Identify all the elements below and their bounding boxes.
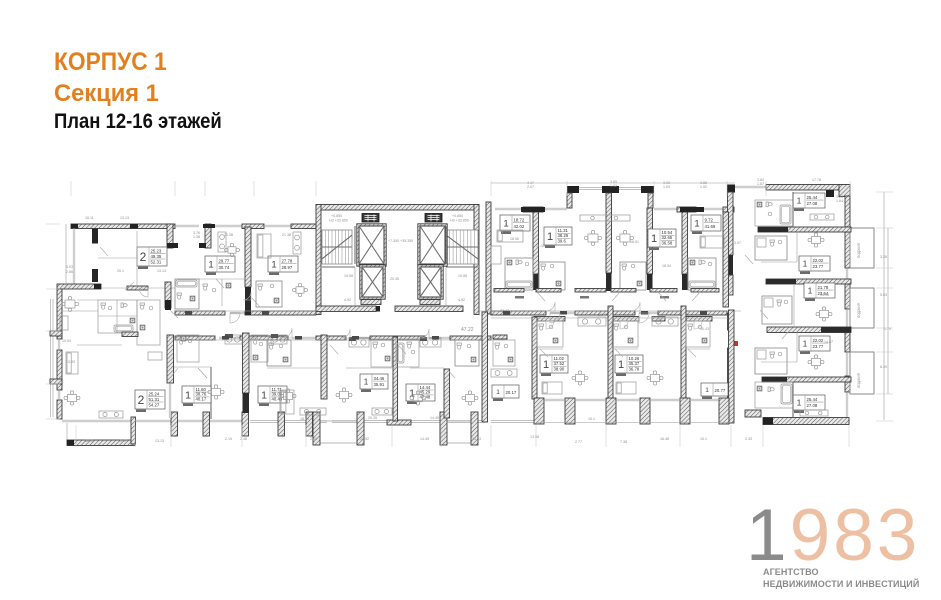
svg-text:2.86: 2.86 <box>66 270 73 274</box>
svg-text:8.39: 8.39 <box>880 365 887 369</box>
svg-text:18.11: 18.11 <box>85 216 94 220</box>
svg-text:2.19: 2.19 <box>225 437 232 441</box>
svg-text:9.72: 9.72 <box>705 217 714 222</box>
svg-text:11.45: 11.45 <box>536 244 545 248</box>
svg-text:49.35: 49.35 <box>151 254 162 259</box>
svg-text:1: 1 <box>503 218 508 229</box>
svg-text:4.92: 4.92 <box>344 298 351 302</box>
svg-text:18.78: 18.78 <box>300 417 309 421</box>
svg-text:1.52: 1.52 <box>700 185 707 189</box>
svg-text:47.22: 47.22 <box>461 327 474 333</box>
svg-text:25.44: 25.44 <box>807 195 818 200</box>
svg-text:14.45: 14.45 <box>420 437 429 441</box>
svg-text:23.77: 23.77 <box>813 264 824 269</box>
svg-text:7.38: 7.38 <box>620 440 627 444</box>
svg-text:19.98: 19.98 <box>344 274 353 278</box>
svg-text:36.78: 36.78 <box>629 366 640 371</box>
svg-text:18.51: 18.51 <box>630 240 639 244</box>
svg-text:1: 1 <box>364 377 369 387</box>
svg-text:2.46: 2.46 <box>310 437 317 441</box>
svg-text:2.77: 2.77 <box>575 440 582 444</box>
svg-text:1: 1 <box>261 389 267 401</box>
svg-text:25.23: 25.23 <box>151 248 162 253</box>
svg-text:20.17: 20.17 <box>506 390 517 395</box>
svg-text:22.02: 22.02 <box>813 258 824 263</box>
svg-text:27.78: 27.78 <box>282 258 293 263</box>
svg-text:20.33: 20.33 <box>472 437 481 441</box>
svg-text:20.1: 20.1 <box>117 269 124 273</box>
svg-text:1: 1 <box>797 398 802 408</box>
svg-text:35.91: 35.91 <box>374 382 385 387</box>
svg-text:2.43: 2.43 <box>745 437 752 441</box>
svg-text:18.72: 18.72 <box>514 217 525 222</box>
svg-text:1.70: 1.70 <box>884 327 891 331</box>
svg-text:НЗ +33.850: НЗ +33.850 <box>329 219 348 223</box>
svg-text:18.56: 18.56 <box>510 237 519 241</box>
svg-text:27.08: 27.08 <box>807 201 818 206</box>
svg-text:54.27: 54.27 <box>149 402 160 407</box>
svg-text:1.87: 1.87 <box>757 182 764 186</box>
svg-text:29.77: 29.77 <box>219 258 230 263</box>
svg-text:51.31: 51.31 <box>149 397 160 402</box>
svg-text:3.28: 3.28 <box>880 255 887 259</box>
svg-text:+7.350 +35.350: +7.350 +35.350 <box>388 239 413 243</box>
svg-text:34.46: 34.46 <box>374 376 385 381</box>
svg-text:30.74: 30.74 <box>219 265 230 270</box>
svg-text:1: 1 <box>271 259 276 270</box>
svg-text:14.45: 14.45 <box>430 416 439 420</box>
svg-text:47.48: 47.48 <box>420 395 431 400</box>
svg-text:1: 1 <box>547 231 553 243</box>
svg-text:1: 1 <box>694 218 699 229</box>
svg-text:14.05: 14.05 <box>820 293 829 297</box>
svg-text:1: 1 <box>496 389 500 396</box>
svg-text:1: 1 <box>618 359 624 371</box>
svg-text:1: 1 <box>705 387 709 394</box>
svg-text:20.77: 20.77 <box>715 388 726 393</box>
svg-text:21.38: 21.38 <box>282 233 291 237</box>
svg-text:39.47: 39.47 <box>598 313 607 317</box>
svg-text:20.35: 20.35 <box>368 416 377 420</box>
svg-text:1: 1 <box>803 259 808 269</box>
svg-text:19.98: 19.98 <box>458 274 467 278</box>
svg-text:13.07: 13.07 <box>732 241 741 245</box>
svg-text:4.92: 4.92 <box>458 298 465 302</box>
svg-text:2: 2 <box>138 393 145 407</box>
svg-text:10.93: 10.93 <box>62 339 71 343</box>
svg-text:1.93: 1.93 <box>663 185 670 189</box>
svg-text:25.44: 25.44 <box>807 397 818 402</box>
svg-text:1: 1 <box>208 259 213 270</box>
svg-text:17.78: 17.78 <box>812 178 821 182</box>
svg-text:27.08: 27.08 <box>807 403 818 408</box>
svg-text:5.63: 5.63 <box>880 293 887 297</box>
svg-text:13.13: 13.13 <box>157 269 166 273</box>
svg-text:13.93: 13.93 <box>66 360 75 364</box>
svg-text:20.92: 20.92 <box>360 437 369 441</box>
svg-text:52.31: 52.31 <box>151 259 162 264</box>
svg-text:14.87: 14.87 <box>824 340 833 344</box>
svg-text:16.48: 16.48 <box>660 437 669 441</box>
svg-text:25.24: 25.24 <box>149 391 160 396</box>
svg-text:22.02: 22.02 <box>813 338 824 343</box>
svg-text:ЛОДЖИЯ: ЛОДЖИЯ <box>857 302 861 318</box>
svg-text:21.38: 21.38 <box>224 233 233 237</box>
svg-text:+0.850: +0.850 <box>331 214 342 218</box>
svg-text:1: 1 <box>651 233 657 245</box>
svg-text:2: 2 <box>140 250 147 264</box>
svg-text:39.6: 39.6 <box>558 238 567 243</box>
svg-text:ЛОДЖИЯ: ЛОДЖИЯ <box>857 242 861 258</box>
svg-text:28.97: 28.97 <box>282 265 293 270</box>
svg-text:40.17: 40.17 <box>196 397 207 402</box>
svg-text:1: 1 <box>797 196 802 206</box>
svg-text:20.35: 20.35 <box>390 277 399 281</box>
svg-text:18.11: 18.11 <box>85 439 94 443</box>
svg-text:2.48: 2.48 <box>240 437 247 441</box>
svg-text:2.07: 2.07 <box>527 185 534 189</box>
svg-text:ЛОДЖИЯ: ЛОДЖИЯ <box>857 372 861 388</box>
svg-text:38.90: 38.90 <box>554 366 565 371</box>
svg-text:15.1: 15.1 <box>700 437 707 441</box>
svg-text:5.57: 5.57 <box>120 439 127 443</box>
svg-text:1.64: 1.64 <box>836 199 843 203</box>
svg-text:23.77: 23.77 <box>813 344 824 349</box>
svg-text:10.43: 10.43 <box>700 327 709 331</box>
svg-text:15.1: 15.1 <box>588 417 595 421</box>
svg-text:13.13: 13.13 <box>120 216 129 220</box>
svg-text:1.38: 1.38 <box>193 235 200 239</box>
svg-text:36.58: 36.58 <box>662 240 673 245</box>
svg-text:1: 1 <box>803 339 808 349</box>
svg-text:1: 1 <box>185 389 191 401</box>
svg-text:1: 1 <box>543 359 549 371</box>
svg-text:41.69: 41.69 <box>705 224 716 229</box>
svg-text:13.58: 13.58 <box>530 435 539 439</box>
svg-text:18.34: 18.34 <box>662 264 671 268</box>
svg-text:21.78: 21.78 <box>818 285 829 290</box>
svg-text:42.02: 42.02 <box>514 224 525 229</box>
svg-text:НЗ +33.850: НЗ +33.850 <box>450 219 469 223</box>
svg-text:5.93: 5.93 <box>66 265 73 269</box>
svg-text:1.62: 1.62 <box>610 184 617 188</box>
svg-text:+0.850: +0.850 <box>452 214 463 218</box>
svg-text:1: 1 <box>808 286 813 296</box>
svg-text:13.13: 13.13 <box>155 439 164 443</box>
